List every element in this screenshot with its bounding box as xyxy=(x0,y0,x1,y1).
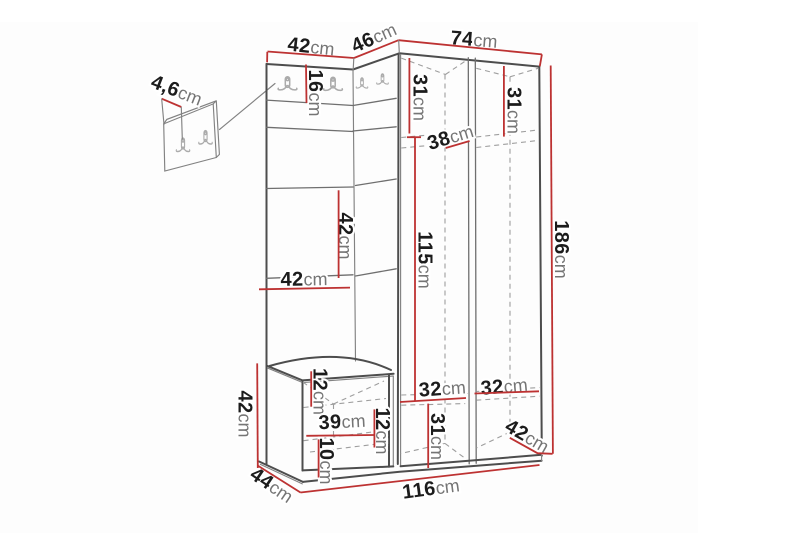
svg-text:115cm: 115cm xyxy=(414,231,436,288)
svg-text:31cm: 31cm xyxy=(409,74,431,121)
svg-text:42cm: 42cm xyxy=(334,212,356,259)
svg-text:31cm: 31cm xyxy=(503,87,525,134)
svg-text:42cm: 42cm xyxy=(234,390,256,437)
svg-text:186cm: 186cm xyxy=(550,220,572,279)
svg-text:16cm: 16cm xyxy=(304,69,326,116)
svg-text:39cm: 39cm xyxy=(318,410,366,434)
